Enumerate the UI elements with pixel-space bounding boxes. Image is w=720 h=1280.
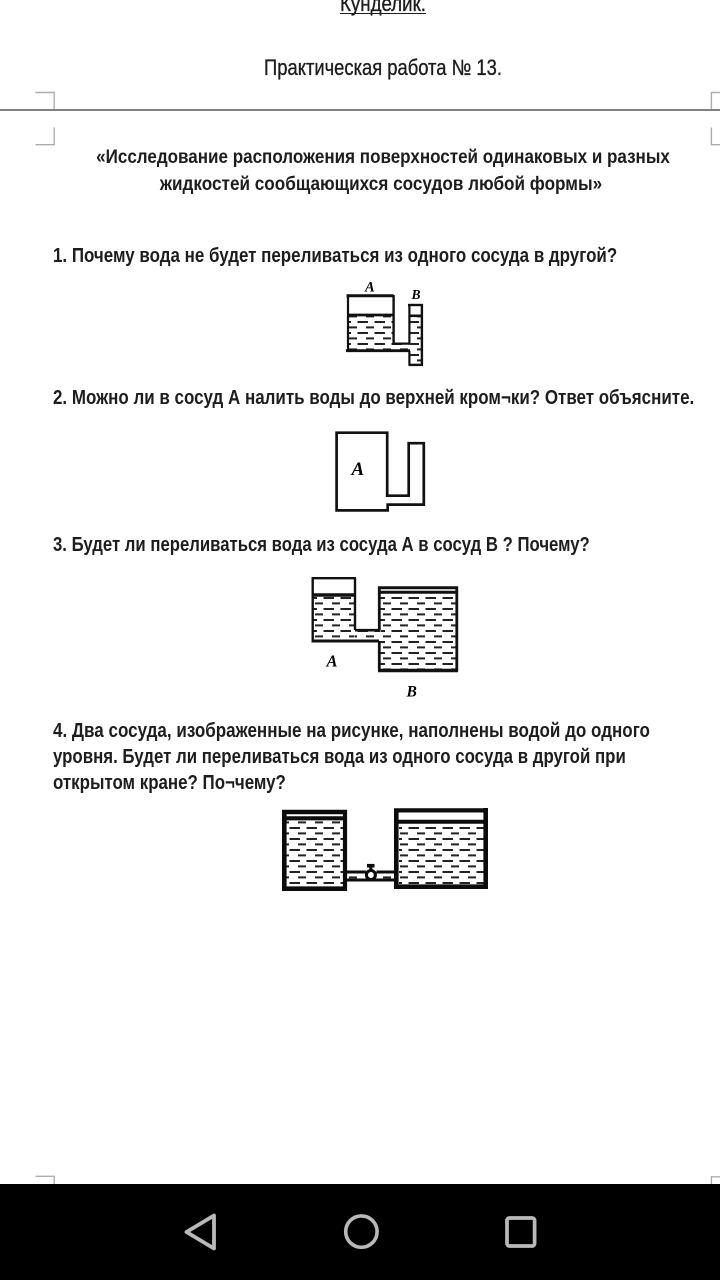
svg-text:A: A xyxy=(364,280,375,296)
svg-text:A: A xyxy=(326,652,338,671)
svg-text:A: A xyxy=(351,459,365,480)
svg-text:B: B xyxy=(406,684,417,701)
svg-text:B: B xyxy=(411,287,421,302)
